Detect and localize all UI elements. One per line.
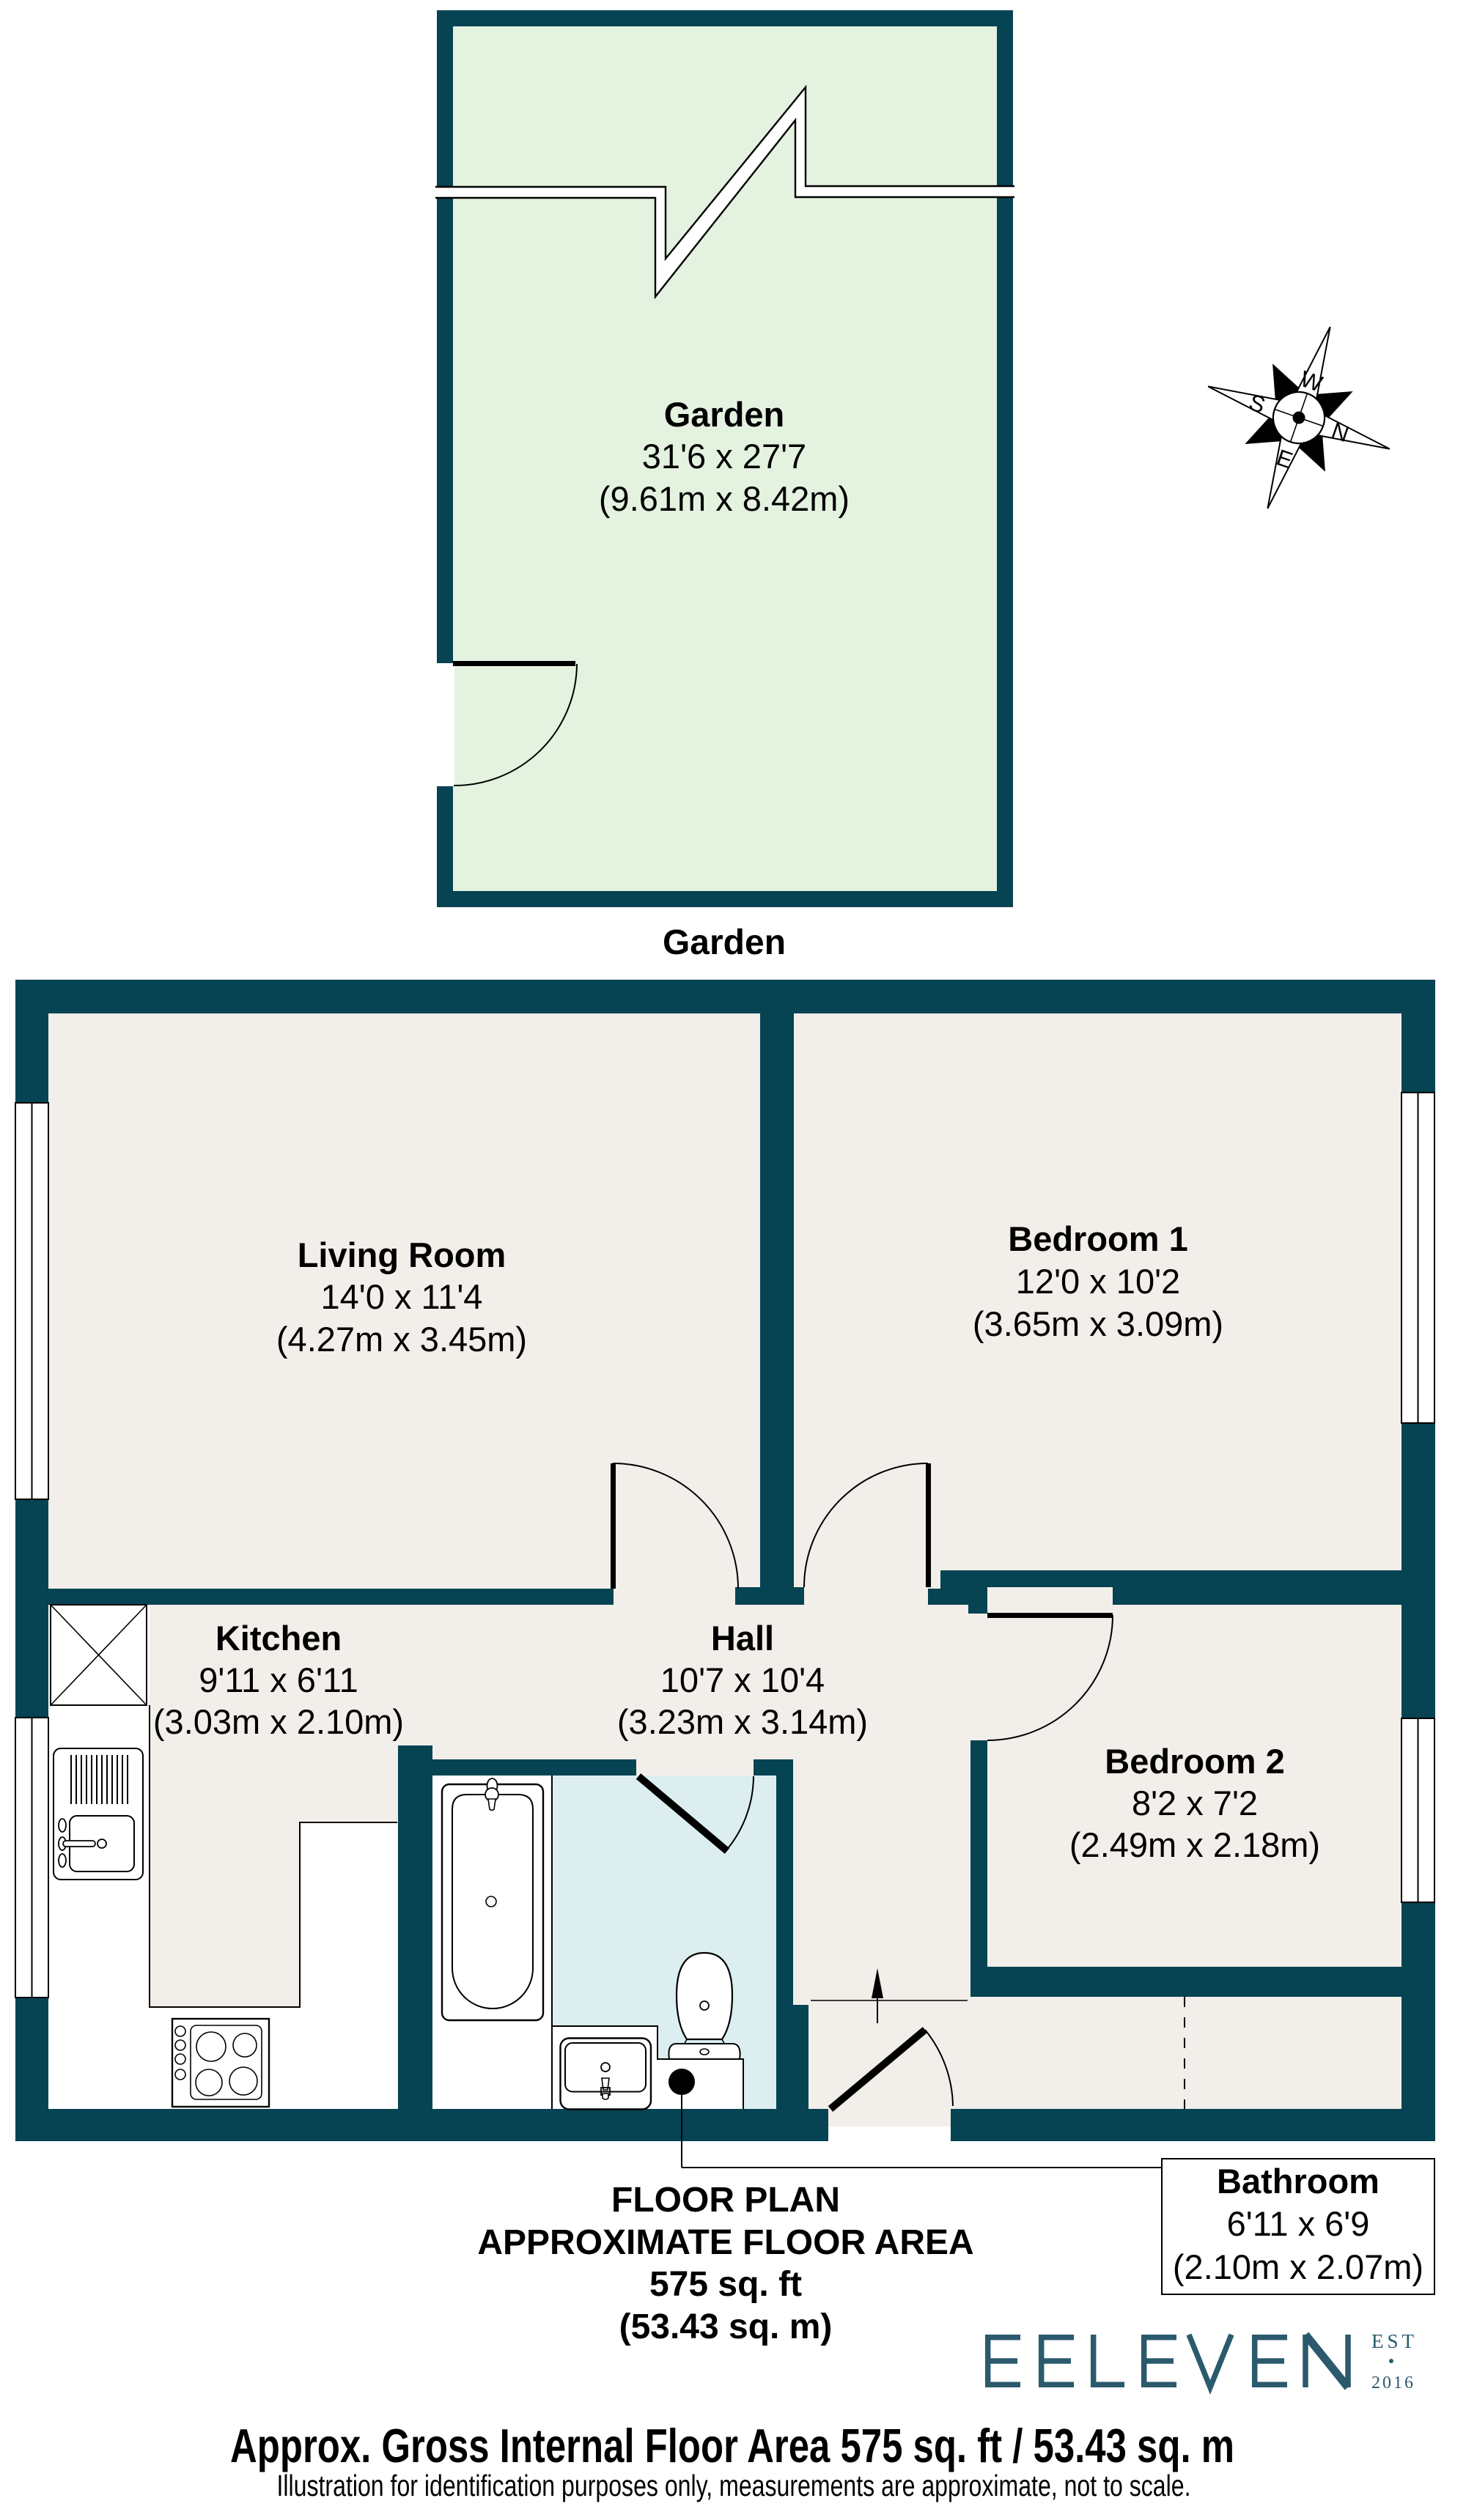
svg-text:(3.23m x 3.14m): (3.23m x 3.14m): [617, 1702, 868, 1741]
svg-text:Bathroom: Bathroom: [1217, 2162, 1380, 2201]
svg-text:6'11 x 6'9: 6'11 x 6'9: [1227, 2204, 1370, 2243]
svg-text:9'11 x 6'11: 9'11 x 6'11: [199, 1660, 358, 1699]
svg-text:8'2 x 7'2: 8'2 x 7'2: [1132, 1784, 1258, 1822]
svg-text:Approx. Gross Internal Floor A: Approx. Gross Internal Floor Area 575 sq…: [230, 2419, 1234, 2472]
svg-text:Hall: Hall: [711, 1619, 774, 1658]
svg-text:Garden: Garden: [664, 395, 785, 434]
svg-text:Living Room: Living Room: [298, 1235, 507, 1274]
svg-text:Kitchen: Kitchen: [216, 1619, 342, 1658]
svg-text:(3.65m x 3.09m): (3.65m x 3.09m): [973, 1304, 1223, 1343]
svg-text:Bedroom 2: Bedroom 2: [1105, 1742, 1285, 1781]
svg-text:(2.10m x 2.07m): (2.10m x 2.07m): [1173, 2247, 1423, 2286]
svg-text:575 sq. ft: 575 sq. ft: [649, 2265, 802, 2304]
svg-text:10'7 x 10'4: 10'7 x 10'4: [660, 1660, 825, 1699]
svg-text:Illustration for identificatio: Illustration for identification purposes…: [277, 2469, 1191, 2502]
svg-text:(3.03m x 2.10m): (3.03m x 2.10m): [153, 1702, 404, 1741]
svg-text:12'0 x 10'2: 12'0 x 10'2: [1016, 1262, 1180, 1301]
svg-text:Bedroom 1: Bedroom 1: [1008, 1219, 1188, 1258]
svg-text:(2.49m x 2.18m): (2.49m x 2.18m): [1069, 1825, 1320, 1864]
svg-text:31'6 x 27'7: 31'6 x 27'7: [642, 437, 806, 476]
svg-text:FLOOR PLAN: FLOOR PLAN: [611, 2181, 840, 2220]
svg-text:(9.61m x 8.42m): (9.61m x 8.42m): [599, 479, 850, 518]
svg-text:14'0 x 11'4: 14'0 x 11'4: [321, 1277, 483, 1316]
svg-text:APPROXIMATE FLOOR AREA: APPROXIMATE FLOOR AREA: [477, 2223, 973, 2262]
svg-text:(4.27m x 3.45m): (4.27m x 3.45m): [276, 1320, 527, 1359]
svg-text:(53.43 sq. m): (53.43 sq. m): [619, 2307, 833, 2346]
svg-text:EST: EST: [1371, 2330, 1418, 2352]
svg-text:Garden: Garden: [663, 923, 786, 962]
svg-text:2016: 2016: [1371, 2373, 1415, 2392]
